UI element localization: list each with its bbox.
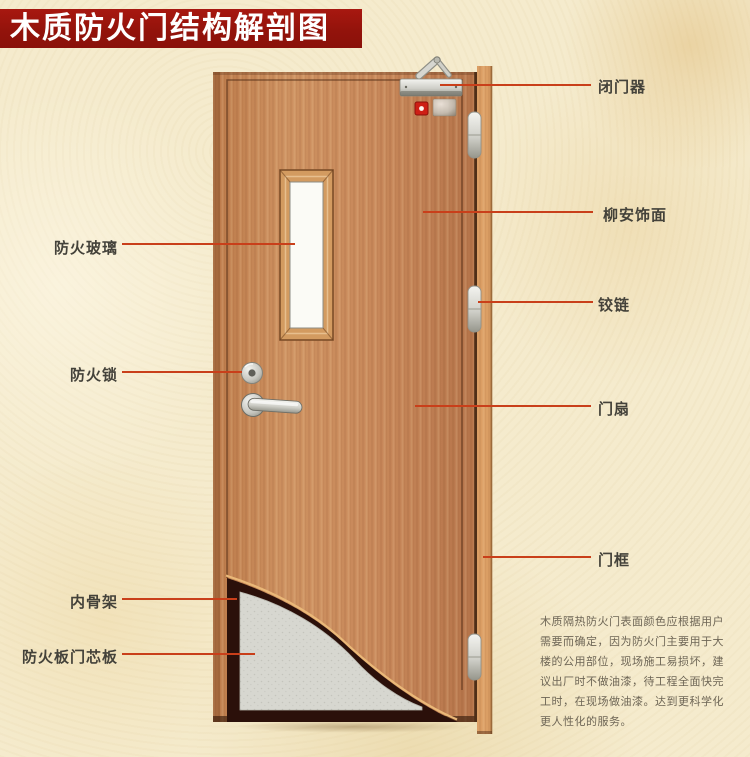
hinge-middle — [468, 286, 481, 332]
fire-lock-cylinder — [242, 363, 263, 384]
leader-door-frame — [483, 556, 591, 558]
label-hinge: 铰链 — [598, 294, 630, 315]
door-illustration — [190, 50, 510, 750]
label-fire-board-core: 防火板门芯板 — [22, 646, 118, 667]
door-frame — [477, 66, 492, 734]
infographic-root: 木质防火门结构解剖图 — [0, 0, 750, 757]
label-door-closer: 闭门器 — [598, 76, 646, 97]
side-note: 木质隔热防火门表面颜色应根据用户 需要而确定，因为防火门主要用于大 楼的公用部位… — [540, 612, 724, 732]
side-note-line: 楼的公用部位，现场施工易损坏，建 — [540, 652, 724, 672]
title-banner: 木质防火门结构解剖图 — [0, 9, 362, 48]
safety-emblem — [415, 102, 428, 115]
door-gap — [474, 72, 477, 722]
side-note-line: 更人性化的服务。 — [540, 712, 724, 732]
side-note-line: 议出厂时不做油漆，待工程全面快完 — [540, 672, 724, 692]
leader-fireproof-lock — [122, 371, 242, 373]
side-note-line: 木质隔热防火门表面颜色应根据用户 — [540, 612, 724, 632]
label-lauan-veneer: 柳安饰面 — [603, 204, 667, 225]
side-note-line: 工时，在现场做油漆。达到更科学化 — [540, 692, 724, 712]
leader-fire-board-core — [122, 653, 255, 655]
glass-pane — [290, 182, 323, 328]
leader-fireproof-glass — [122, 243, 295, 245]
label-door-frame: 门框 — [598, 549, 630, 570]
leader-lauan-veneer — [423, 211, 593, 213]
label-fireproof-glass: 防火玻璃 — [54, 237, 118, 258]
side-note-line: 需要而确定，因为防火门主要用于大 — [540, 632, 724, 652]
leader-hinge — [478, 301, 593, 303]
fire-glass-window — [280, 170, 333, 340]
leader-door-leaf — [415, 405, 591, 407]
door-shadow — [198, 722, 510, 738]
leader-inner-skeleton — [122, 598, 237, 600]
hinge-bottom — [468, 634, 481, 680]
page-title: 木质防火门结构解剖图 — [10, 12, 330, 45]
label-inner-skeleton: 内骨架 — [70, 591, 118, 612]
label-door-leaf: 门扇 — [598, 398, 630, 419]
leader-door-closer — [440, 84, 591, 86]
hinge-top — [468, 112, 481, 158]
label-fireproof-lock: 防火锁 — [70, 364, 118, 385]
closer-plate — [433, 99, 456, 116]
